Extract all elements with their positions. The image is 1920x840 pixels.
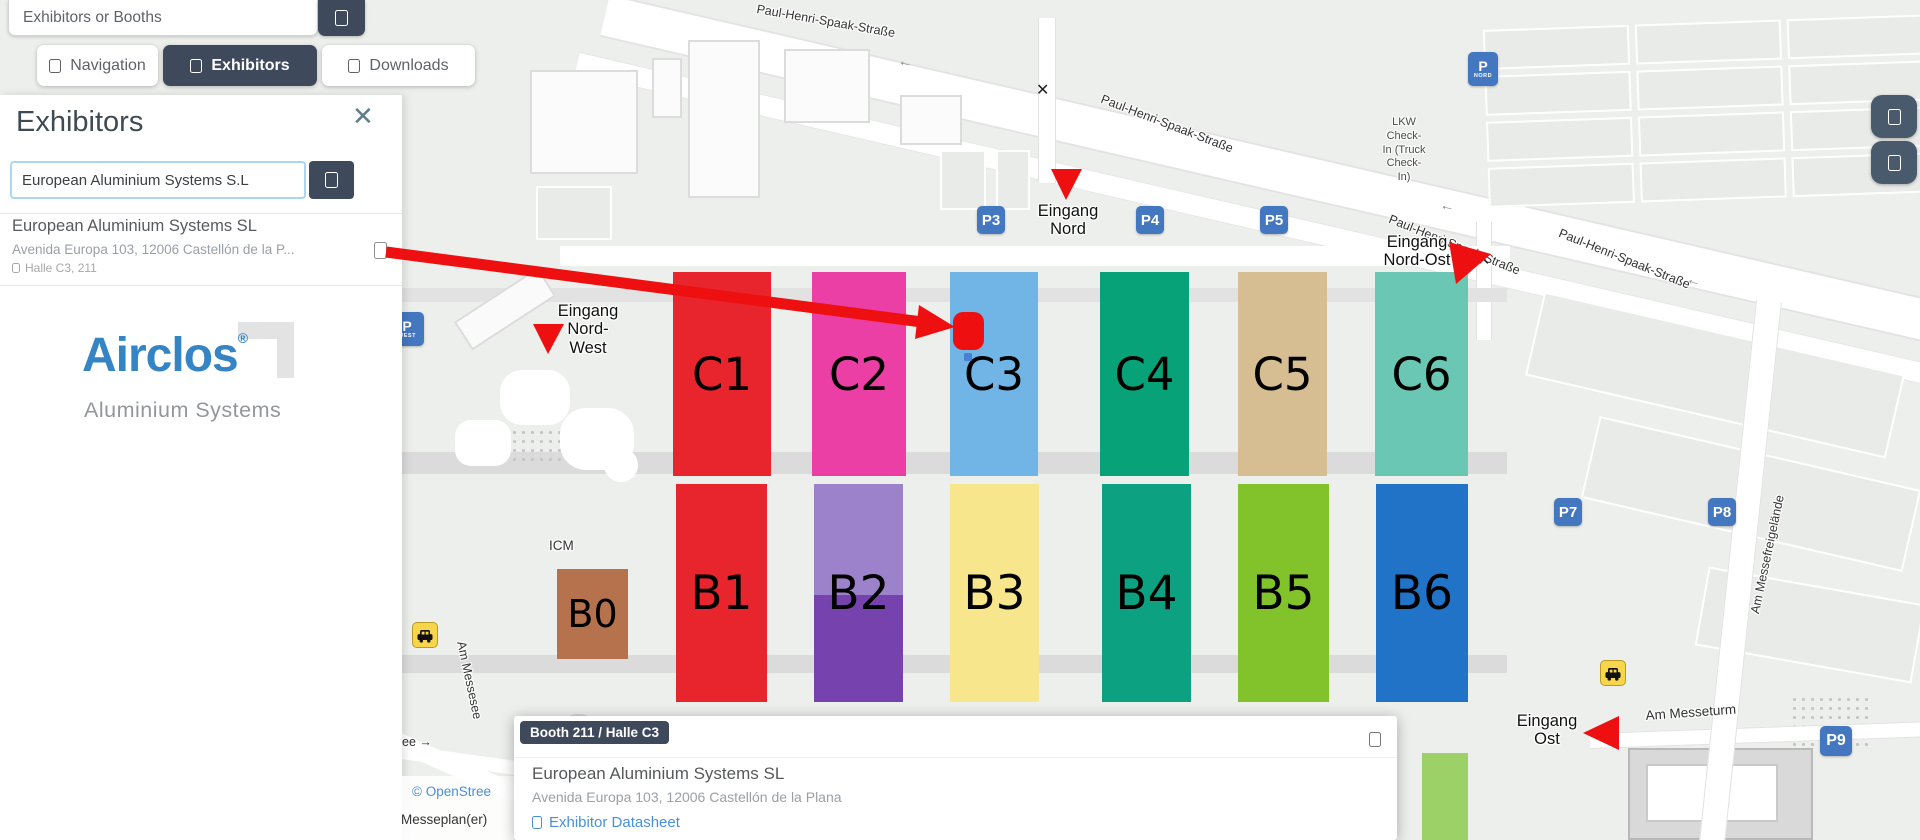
exhibitor-search-button[interactable] — [309, 161, 354, 199]
hall-b2-label: B2 — [827, 570, 889, 617]
document-icon — [532, 816, 542, 829]
divider — [0, 285, 402, 286]
popup-exhibitor-address: Avenida Europa 103, 12006 Castellón de l… — [532, 789, 842, 805]
crossing-mark: ✕ — [1036, 80, 1049, 100]
parking-badge-p9: P9 — [1820, 726, 1852, 756]
fullscreen-icon — [1888, 109, 1901, 125]
hall-pin-icon — [12, 263, 20, 273]
logo-tagline: Aluminium Systems — [84, 398, 281, 423]
hall-c4-label: C4 — [1114, 352, 1174, 397]
road-hall-top — [560, 246, 1510, 266]
hall-b5-label: B5 — [1252, 570, 1314, 617]
entrance-label-nord: EingangNord — [1024, 202, 1112, 239]
hall-b0[interactable]: B0 — [557, 569, 628, 659]
exhibitors-icon — [190, 59, 202, 73]
booth-popup-header: Booth 211 / Halle C3 — [514, 716, 1397, 758]
hall-b2[interactable]: B2 — [814, 484, 903, 702]
hall-c1-label: C1 — [692, 352, 752, 397]
logo-brand-text: Airclos® — [82, 328, 248, 383]
hall-partial-green[interactable] — [1422, 753, 1468, 840]
parking-badge-p8: P8 — [1708, 498, 1736, 526]
map-building — [652, 58, 682, 118]
exhibitor-search-input[interactable] — [10, 161, 306, 199]
panel-close-button[interactable]: ✕ — [352, 101, 374, 132]
plaza-shape — [455, 420, 511, 466]
show-on-map-icon[interactable] — [374, 242, 387, 259]
result-address: Avenida Europa 103, 12006 Castellón de l… — [12, 242, 294, 257]
hall-b4[interactable]: B4 — [1102, 484, 1191, 702]
result-location: Halle C3, 211 — [12, 261, 97, 275]
map-building — [940, 150, 986, 210]
hall-b1[interactable]: B1 — [676, 484, 767, 702]
parking-badge-p7: P7 — [1554, 498, 1582, 526]
map-building — [530, 70, 638, 174]
hall-c5[interactable]: C5 — [1238, 272, 1327, 476]
parking-grid-north — [1483, 14, 1920, 220]
hall-b3[interactable]: B3 — [950, 484, 1039, 702]
panel-title: Exhibitors — [16, 106, 143, 139]
divider — [0, 213, 402, 214]
hall-c3-label: C3 — [964, 352, 1024, 397]
map-fullscreen-button[interactable] — [1871, 95, 1917, 138]
hall-b3-label: B3 — [963, 570, 1025, 617]
hall-b0-label: B0 — [567, 595, 617, 633]
tab-exhibitors[interactable]: Exhibitors — [163, 45, 317, 86]
lkw-checkin-label: LKW Check- In (Truck Check- In) — [1370, 116, 1438, 185]
fairground-map-app: C1 C2 C3 C4 C5 C6 B1 B2 B3 B4 B5 B6 B0 P… — [0, 0, 1920, 840]
map-building — [454, 268, 556, 351]
hall-c1[interactable]: C1 — [673, 272, 771, 476]
hall-c6-label: C6 — [1391, 352, 1451, 397]
popup-close-button[interactable] — [1369, 732, 1381, 750]
plaza-shape — [500, 370, 570, 425]
hall-c3[interactable]: C3 — [950, 272, 1038, 476]
map-building — [900, 95, 962, 145]
popup-exhibitor-name: European Aluminium Systems SL — [532, 764, 784, 784]
crossing-mark: ✕ — [1477, 250, 1490, 270]
booth-marker[interactable] — [953, 312, 984, 350]
close-icon — [1369, 732, 1381, 747]
road-am-messeturm — [1590, 721, 1920, 749]
entrance-label-nord-west: EingangNord-West — [548, 302, 628, 357]
downloads-icon — [348, 59, 360, 73]
osm-attribution-link[interactable]: © OpenStree — [412, 784, 491, 799]
booth-popup: Booth 211 / Halle C3 European Aluminium … — [514, 716, 1397, 840]
entrance-label-ost: EingangOst — [1505, 712, 1589, 749]
exhibitors-panel: Exhibitors ✕ European Aluminium Systems … — [0, 95, 402, 840]
hall-b4-label: B4 — [1115, 570, 1177, 617]
messeplaner-attribution: Messeplan(er) — [401, 812, 487, 827]
street-label-see-fragment: ee → — [402, 735, 432, 749]
taxi-stand-icon — [1600, 660, 1626, 686]
booth-popup-badge: Booth 211 / Halle C3 — [520, 721, 669, 744]
layers-icon — [1888, 155, 1901, 171]
hall-b6[interactable]: B6 — [1376, 484, 1468, 702]
road-vertical-northeast — [1476, 222, 1492, 340]
tab-downloads[interactable]: Downloads — [322, 45, 475, 86]
result-name: European Aluminium Systems SL — [12, 217, 257, 236]
hall-c6[interactable]: C6 — [1375, 272, 1468, 476]
global-search-input[interactable] — [9, 9, 317, 27]
hall-b1-label: B1 — [690, 570, 752, 617]
search-icon — [325, 172, 338, 188]
parking-badge-p3: P3 — [977, 206, 1005, 234]
registered-mark: ® — [238, 330, 248, 346]
logo-corner-bracket — [277, 322, 294, 378]
navigation-icon — [49, 59, 61, 73]
exhibitor-datasheet-link[interactable]: Exhibitor Datasheet — [532, 814, 680, 831]
hall-c2-label: C2 — [829, 352, 889, 397]
global-search-button[interactable] — [318, 0, 365, 36]
taxi-stand-icon — [412, 622, 438, 648]
exhibitor-logo: Airclos® Aluminium Systems — [70, 318, 340, 428]
road-vertical-north — [1038, 18, 1056, 183]
hall-c2[interactable]: C2 — [812, 272, 906, 476]
map-layers-button[interactable] — [1871, 141, 1917, 184]
hall-b6-label: B6 — [1391, 570, 1453, 617]
parking-badge-p4: P4 — [1136, 206, 1164, 234]
entrance-label-nord-ost: EingangNord-Ost — [1374, 233, 1460, 270]
map-building — [996, 150, 1030, 210]
hall-c5-label: C5 — [1252, 352, 1312, 397]
hall-c4[interactable]: C4 — [1100, 272, 1189, 476]
map-building — [536, 186, 612, 240]
search-icon — [335, 10, 348, 26]
hall-b5[interactable]: B5 — [1238, 484, 1329, 702]
parking-badge-p5: P5 — [1260, 206, 1288, 234]
tab-navigation[interactable]: Navigation — [37, 45, 158, 86]
plaza-shape — [604, 448, 638, 482]
icm-label: ICM — [549, 538, 574, 553]
map-building — [784, 49, 870, 123]
map-attribution: © OpenStree Messeplan(er) — [396, 776, 514, 840]
map-building — [688, 40, 760, 198]
parking-badge-p-nord: PNORD — [1468, 52, 1498, 86]
global-search — [8, 0, 318, 36]
